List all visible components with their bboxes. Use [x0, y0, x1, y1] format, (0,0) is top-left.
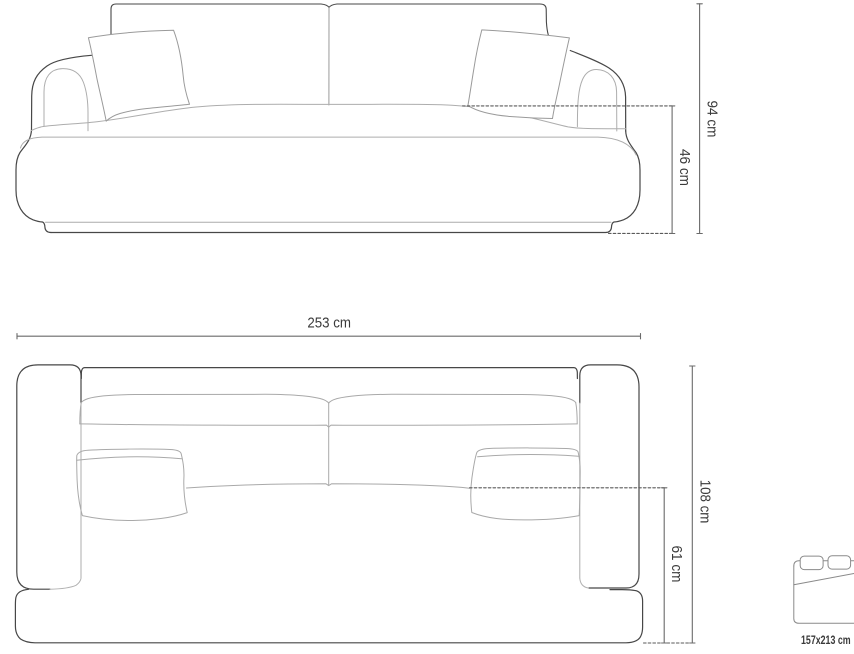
svg-text:108 cm: 108 cm [696, 480, 713, 524]
svg-text:61 cm: 61 cm [668, 546, 685, 583]
svg-text:94 cm: 94 cm [704, 101, 721, 138]
svg-text:157x213 cm: 157x213 cm [801, 635, 851, 647]
svg-text:253 cm: 253 cm [307, 315, 351, 332]
svg-text:46 cm: 46 cm [676, 149, 693, 186]
